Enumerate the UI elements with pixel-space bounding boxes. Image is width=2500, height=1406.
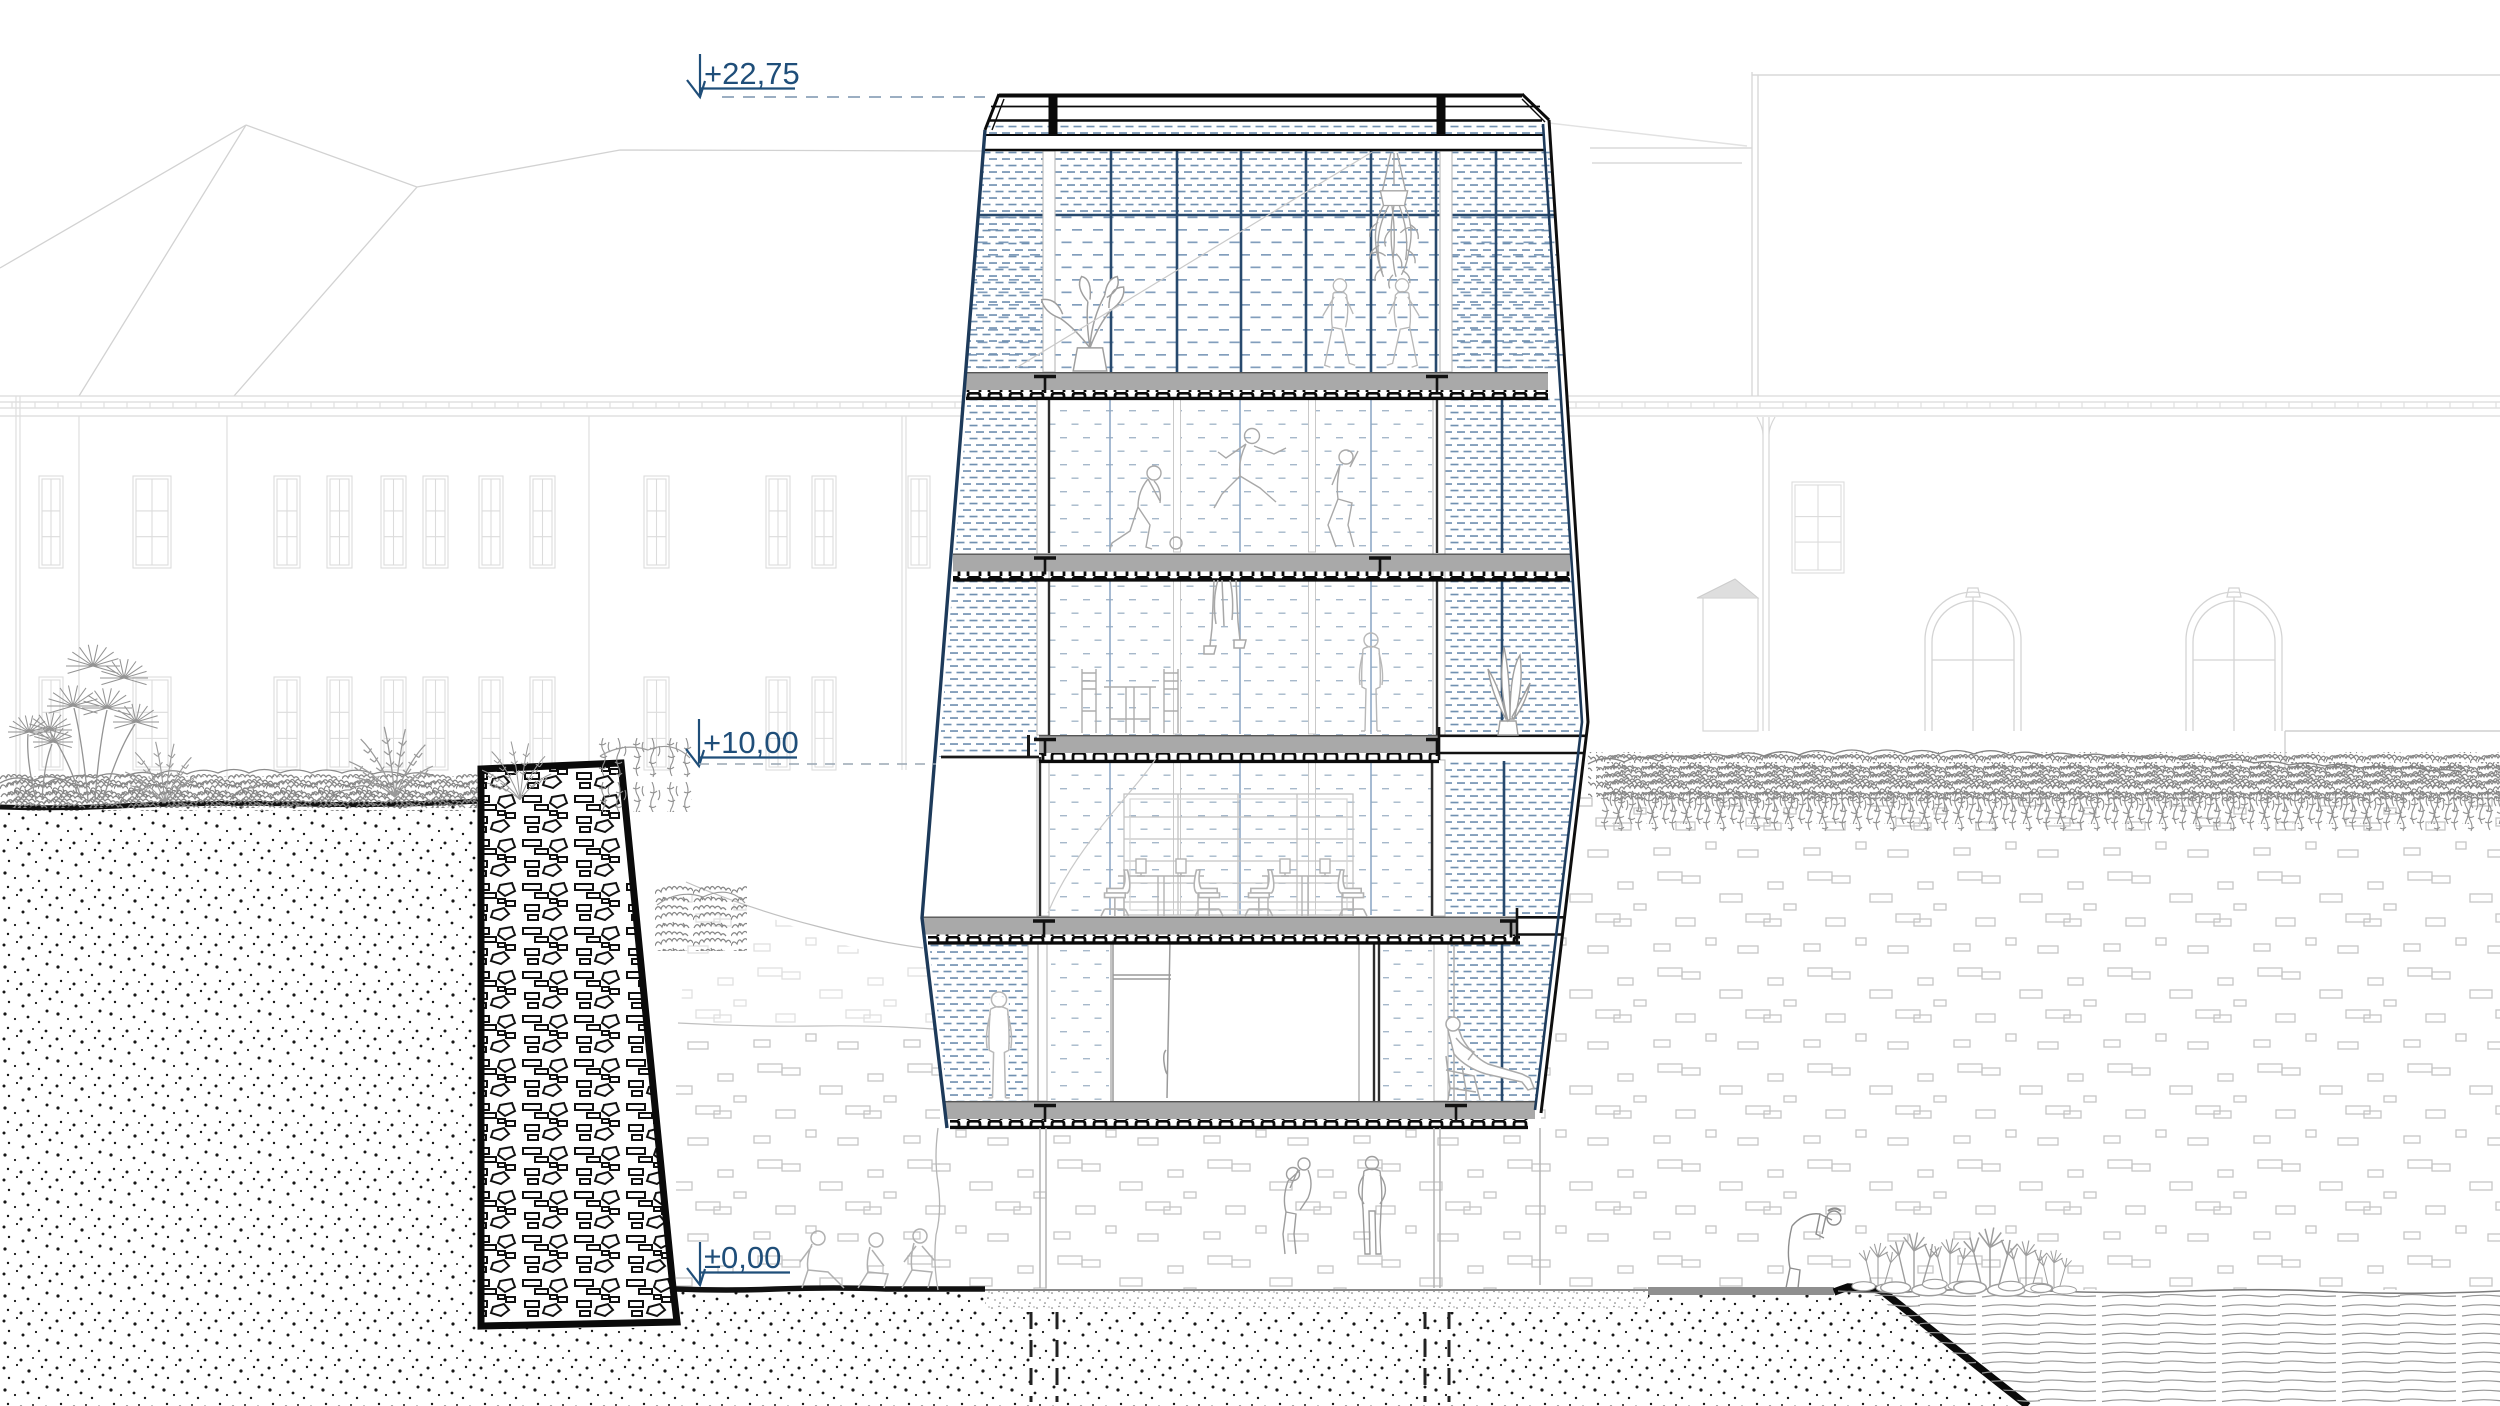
svg-text:±0,00: ±0,00 bbox=[704, 1240, 781, 1275]
svg-text:+22,75: +22,75 bbox=[704, 56, 800, 91]
svg-text:+10,00: +10,00 bbox=[703, 725, 799, 760]
